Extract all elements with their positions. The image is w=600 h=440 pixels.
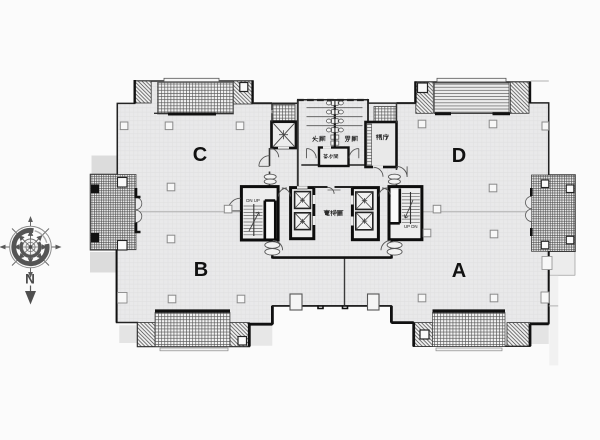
svg-text:DN UP: DN UP	[246, 198, 260, 203]
svg-text:N: N	[25, 272, 35, 287]
svg-text:A: A	[452, 260, 466, 282]
svg-text:D: D	[452, 145, 466, 167]
svg-text:B: B	[194, 259, 208, 281]
svg-text:C: C	[193, 144, 207, 166]
svg-text:UP DN: UP DN	[404, 224, 418, 229]
